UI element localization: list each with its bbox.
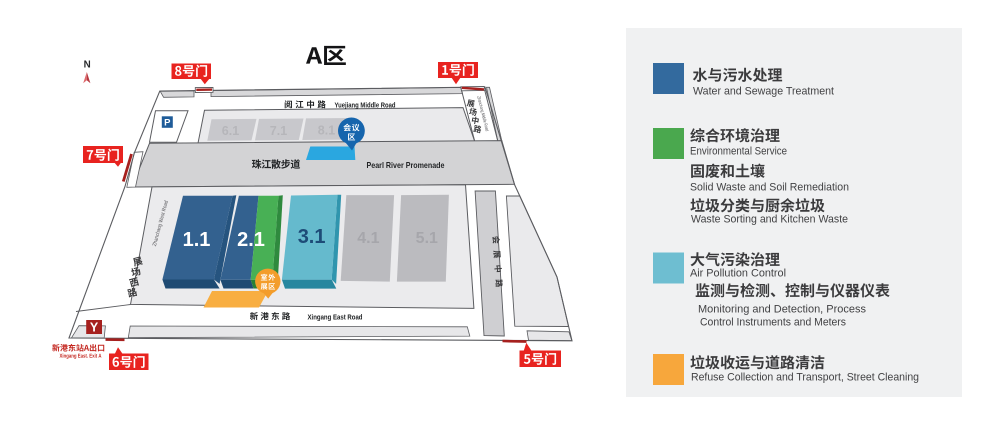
- svg-text:5.1: 5.1: [416, 230, 438, 247]
- svg-text:Yuejiang Middle Road: Yuejiang Middle Road: [335, 101, 396, 110]
- svg-text:Environmental Service: Environmental Service: [690, 145, 787, 157]
- svg-text:Y: Y: [90, 321, 99, 335]
- svg-text:8.1: 8.1: [318, 123, 335, 137]
- svg-text:4.1: 4.1: [357, 230, 379, 247]
- svg-text:P: P: [164, 118, 171, 129]
- svg-text:N: N: [84, 60, 91, 71]
- svg-text:Monitoring and Detection, Pro: Monitoring and Detection, Process: [698, 304, 866, 316]
- svg-text:Pearl River Promenade: Pearl River Promenade: [367, 160, 445, 170]
- svg-text:Refuse Collection and Transpor: Refuse Collection and Transport, Street …: [691, 371, 919, 383]
- svg-text:1.1: 1.1: [183, 229, 211, 251]
- svg-text:Water and Sewage Treatment: Water and Sewage Treatment: [693, 85, 834, 97]
- svg-text:Solid Waste and Soil Remediati: Solid Waste and Soil Remediation: [690, 181, 849, 193]
- svg-text:Air Pollution Control: Air Pollution Control: [690, 268, 786, 280]
- svg-text:Xingang East Road: Xingang East Road: [308, 312, 363, 321]
- svg-text:7.1: 7.1: [270, 124, 287, 138]
- svg-text:6.1: 6.1: [222, 124, 239, 138]
- svg-text:2.1: 2.1: [237, 229, 265, 251]
- svg-text:Control Instruments and Meters: Control Instruments and Meters: [700, 317, 846, 329]
- svg-text:Waste Sorting and Kitchen Wast: Waste Sorting and Kitchen Waste: [691, 214, 848, 226]
- svg-text:3.1: 3.1: [298, 226, 326, 248]
